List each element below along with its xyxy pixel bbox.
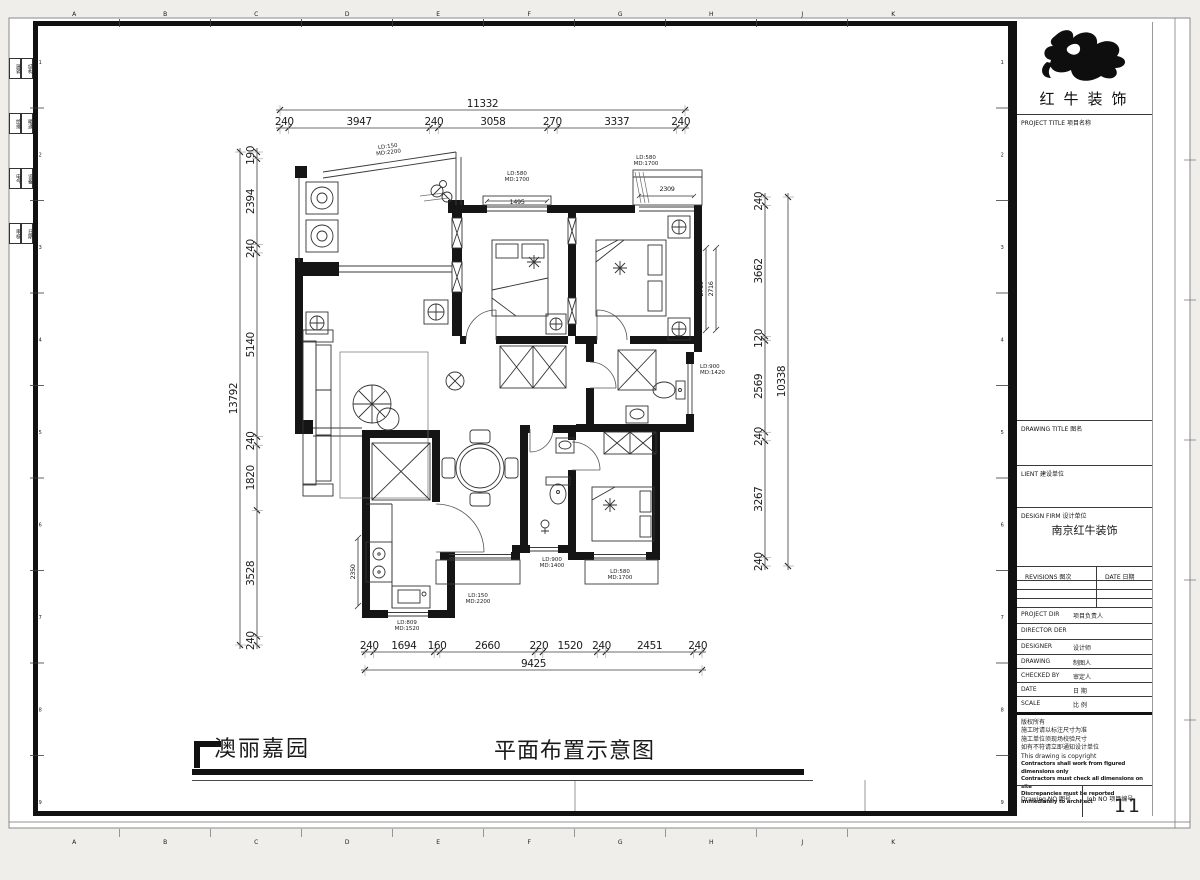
window-label: LD:580MD:1700 bbox=[634, 155, 659, 167]
cad-sheet-page: { "footer": { "project_name": "澳丽嘉园", "d… bbox=[0, 0, 1200, 880]
dim-value: 240 bbox=[245, 432, 257, 451]
dim-value: 1694 bbox=[391, 640, 417, 652]
margin-box: 建筑 bbox=[9, 58, 21, 79]
dim-value: 2394 bbox=[245, 188, 257, 214]
grid-letter-top: J bbox=[800, 11, 803, 18]
grid-letter-bottom: G bbox=[618, 839, 623, 846]
date-cn: 日 期 bbox=[1073, 686, 1087, 695]
dim-value: 1520 bbox=[557, 640, 582, 652]
dim-value: 3662 bbox=[753, 258, 765, 283]
margin-box: 暖通 bbox=[21, 113, 33, 134]
dim-value: 2660 bbox=[475, 640, 500, 652]
grid-number-left: 4 bbox=[39, 338, 42, 344]
grid-letter-bottom: B bbox=[163, 839, 167, 846]
dim-total: 10338 bbox=[776, 366, 788, 397]
designer-label: DESIGNER bbox=[1021, 643, 1052, 650]
director-label: DIRECTOR DER bbox=[1021, 627, 1067, 634]
dim-value: 160 bbox=[428, 640, 447, 652]
scale-cn: 比 例 bbox=[1073, 700, 1087, 709]
designer-row: DESIGNER 设计师 bbox=[1017, 640, 1152, 655]
interior-dim: 2350 bbox=[349, 564, 357, 579]
grid-letter-bottom: C bbox=[254, 839, 258, 846]
drawing-cn: 制图人 bbox=[1073, 658, 1091, 667]
checked-by-cn: 审定人 bbox=[1073, 672, 1091, 681]
dim-value: 240 bbox=[753, 427, 765, 446]
checked-row: CHECKED BY 审定人 bbox=[1017, 669, 1152, 683]
revision-row bbox=[1017, 581, 1152, 590]
date-label: DATE bbox=[1021, 686, 1037, 693]
drawing-no-label: Drawing NO 图号 bbox=[1017, 794, 1071, 803]
grid-number-left: 3 bbox=[39, 245, 42, 251]
job-no-value: 11 bbox=[1114, 795, 1142, 817]
revisions-label: REVISIONS 图次 bbox=[1021, 570, 1071, 581]
revision-row bbox=[1017, 599, 1152, 608]
margin-box: 审核 bbox=[9, 223, 21, 244]
grid-number-right: 5 bbox=[1001, 430, 1004, 436]
window-label: LD:150MD:2200 bbox=[466, 593, 491, 605]
drawing-label: DRAWING bbox=[1021, 658, 1050, 665]
dim-total: 11332 bbox=[467, 98, 498, 110]
director-row: DIRECTOR DER bbox=[1017, 624, 1152, 640]
window-label: LD:580MD:1700 bbox=[505, 171, 530, 183]
project-name-title: 澳丽嘉园 bbox=[214, 731, 310, 763]
margin-box: 给排 bbox=[9, 113, 21, 134]
revisions-divider bbox=[1096, 567, 1097, 608]
grid-number-left: 6 bbox=[39, 523, 42, 529]
grid-number-right: 7 bbox=[1001, 615, 1004, 621]
copyright-line: 施工单位须现场校验尺寸 bbox=[1021, 736, 1152, 744]
revisions-header: REVISIONS 图次 DATE 日期 bbox=[1017, 567, 1152, 581]
grid-letter-top: E bbox=[436, 11, 440, 18]
grid-number-left: 5 bbox=[39, 430, 42, 436]
grid-letter-top: D bbox=[345, 11, 350, 18]
dim-total: 9425 bbox=[521, 658, 546, 670]
dim-value: 3947 bbox=[347, 116, 372, 128]
window-label: LD:809MD:1520 bbox=[395, 620, 420, 632]
drawing-row: DRAWING 制图人 bbox=[1017, 655, 1152, 669]
grid-letter-bottom: D bbox=[345, 839, 350, 846]
grid-number-left: 7 bbox=[39, 615, 42, 621]
grid-number-right: 6 bbox=[1001, 523, 1004, 529]
dim-value: 240 bbox=[245, 239, 257, 258]
designer-cn: 设计师 bbox=[1073, 643, 1091, 652]
dim-value: 2569 bbox=[753, 374, 765, 399]
dim-value: 220 bbox=[529, 640, 548, 652]
date-col-label: DATE 日期 bbox=[1101, 570, 1135, 581]
grid-number-left: 8 bbox=[39, 708, 42, 714]
dim-value: 240 bbox=[245, 631, 257, 650]
scale-row: SCALE 比 例 bbox=[1017, 697, 1152, 712]
project-dir-label: PROJECT DIR bbox=[1021, 611, 1059, 618]
grid-letter-bottom: H bbox=[709, 839, 713, 846]
grid-number-right: 1 bbox=[1001, 60, 1004, 66]
interior-dim: 2309 bbox=[660, 185, 675, 193]
dim-value: 240 bbox=[753, 192, 765, 211]
dim-value: 190 bbox=[245, 146, 257, 165]
grid-number-left: 2 bbox=[39, 153, 42, 159]
margin-box: 电气 bbox=[9, 168, 21, 189]
grid-letter-top: F bbox=[527, 11, 531, 18]
dim-value: 2451 bbox=[637, 640, 662, 652]
revision-row bbox=[1017, 590, 1152, 599]
grid-letter-top: B bbox=[163, 11, 167, 18]
grid-letter-top: A bbox=[72, 11, 77, 18]
grid-number-right: 9 bbox=[1001, 800, 1004, 806]
dim-value: 240 bbox=[753, 552, 765, 571]
project-dir-row: PROJECT DIR 项目负责人 bbox=[1017, 608, 1152, 624]
footer-underline-bar bbox=[192, 769, 804, 775]
footer-corner-mark-leg bbox=[194, 741, 200, 768]
interior-dim: 2716 bbox=[697, 281, 705, 296]
grid-number-right: 4 bbox=[1001, 338, 1004, 344]
dim-total: 13792 bbox=[228, 383, 240, 414]
dim-value: 1820 bbox=[245, 465, 257, 490]
copyright-line: 如有不符请立即通知设计单位 bbox=[1021, 744, 1152, 752]
checked-by-label: CHECKED BY bbox=[1021, 672, 1059, 679]
window-label: LD:580MD:1700 bbox=[608, 569, 633, 581]
grid-letter-top: K bbox=[891, 11, 896, 18]
grid-letter-bottom: K bbox=[891, 839, 896, 846]
grid-number-right: 3 bbox=[1001, 245, 1004, 251]
dim-value: 5140 bbox=[245, 332, 257, 357]
titleblock-thick-divider bbox=[1017, 712, 1152, 715]
grid-number-right: 8 bbox=[1001, 708, 1004, 714]
grid-number-right: 2 bbox=[1001, 153, 1004, 159]
scale-label: SCALE bbox=[1021, 700, 1040, 707]
dim-value: 3267 bbox=[753, 487, 765, 512]
margin-box: 结构 bbox=[21, 58, 33, 79]
grid-letter-bottom: A bbox=[72, 839, 77, 846]
grid-number-left: 1 bbox=[39, 60, 42, 66]
interior-dim: 2716 bbox=[707, 281, 715, 296]
dim-value: 3337 bbox=[604, 116, 629, 128]
footer-underline-thin bbox=[192, 780, 813, 781]
margin-box: 设备 bbox=[21, 168, 33, 189]
date-row: DATE 日 期 bbox=[1017, 683, 1152, 697]
grid-letter-bottom: E bbox=[436, 839, 440, 846]
copyright-bold-line: Contractors shall work from figured dime… bbox=[1021, 761, 1152, 776]
title-block: 红牛装饰 PROJECT TITLE 项目名称 DRAWING TITLE 图名… bbox=[1017, 22, 1152, 816]
grid-letter-top: H bbox=[709, 11, 713, 18]
margin-box: 日期 bbox=[21, 223, 33, 244]
copyright-line: This drawing is copyright bbox=[1021, 753, 1152, 761]
grid-letter-bottom: J bbox=[800, 839, 803, 846]
interior-dim: 1495 bbox=[510, 198, 525, 206]
project-dir-cn: 项目负责人 bbox=[1073, 611, 1103, 620]
drawing-number-row: Drawing NO 图号 Job NO 项目编号 11 bbox=[1017, 785, 1152, 816]
grid-number-left: 9 bbox=[39, 800, 42, 806]
dim-value: 3058 bbox=[480, 116, 505, 128]
grid-letter-top: G bbox=[618, 11, 623, 18]
grid-letter-bottom: F bbox=[527, 839, 531, 846]
copyright-line: 施工时请以标注尺寸为准 bbox=[1021, 727, 1152, 735]
grid-letter-top: C bbox=[254, 11, 258, 18]
window-label: LD:900MD:1400 bbox=[540, 557, 565, 569]
drawing-name-title: 平面布置示意图 bbox=[494, 733, 655, 765]
dim-value: 3528 bbox=[245, 561, 257, 586]
